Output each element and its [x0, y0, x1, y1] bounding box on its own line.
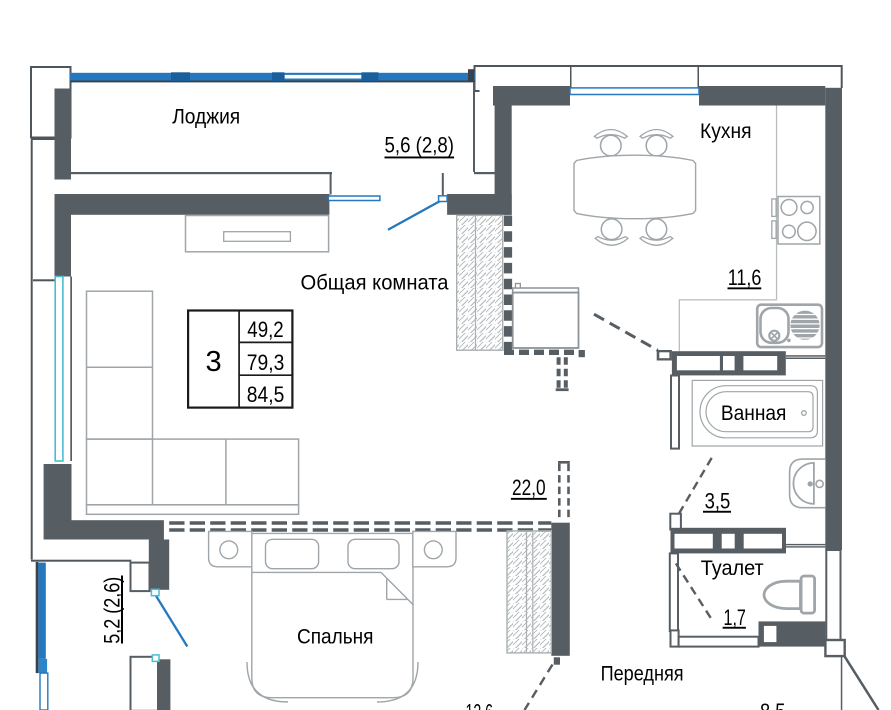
svg-text:Спальня: Спальня	[297, 626, 374, 649]
svg-text:1,7: 1,7	[724, 605, 746, 630]
svg-text:12,6: 12,6	[466, 700, 494, 710]
svg-text:Общая комната: Общая комната	[301, 271, 449, 295]
svg-text:Туалет: Туалет	[701, 557, 764, 580]
svg-text:Передняя: Передняя	[601, 663, 684, 686]
svg-text:84,5: 84,5	[247, 382, 284, 407]
svg-text:79,3: 79,3	[247, 350, 284, 375]
svg-text:3,5: 3,5	[705, 489, 731, 514]
svg-text:Кухня: Кухня	[700, 120, 752, 143]
svg-text:Ванная: Ванная	[721, 402, 787, 425]
svg-text:Лоджия: Лоджия	[172, 106, 240, 129]
svg-text:8,5: 8,5	[760, 699, 786, 710]
svg-text:5,6 (2,8): 5,6 (2,8)	[385, 133, 455, 158]
svg-text:22,0: 22,0	[512, 475, 546, 500]
svg-text:49,2: 49,2	[247, 317, 283, 342]
svg-text:3: 3	[206, 346, 222, 378]
svg-text:5,2 (2,6): 5,2 (2,6)	[100, 577, 125, 644]
svg-text:11,6: 11,6	[728, 265, 762, 290]
